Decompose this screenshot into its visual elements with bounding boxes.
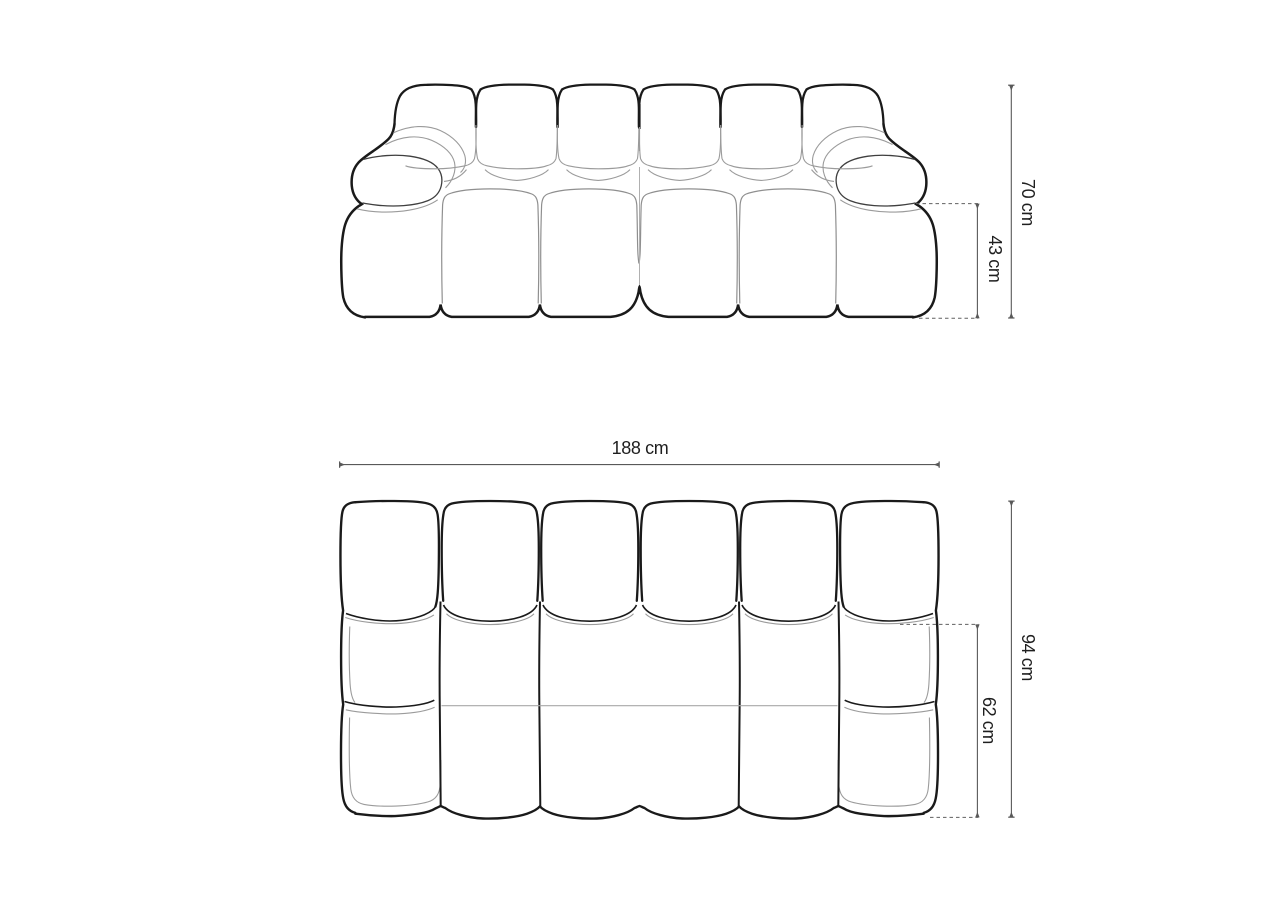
svg-text:94 cm: 94 cm — [1018, 634, 1038, 681]
svg-text:70 cm: 70 cm — [1018, 179, 1038, 226]
svg-text:188 cm: 188 cm — [612, 438, 669, 458]
svg-text:43 cm: 43 cm — [985, 235, 1005, 282]
svg-text:62 cm: 62 cm — [979, 697, 999, 744]
